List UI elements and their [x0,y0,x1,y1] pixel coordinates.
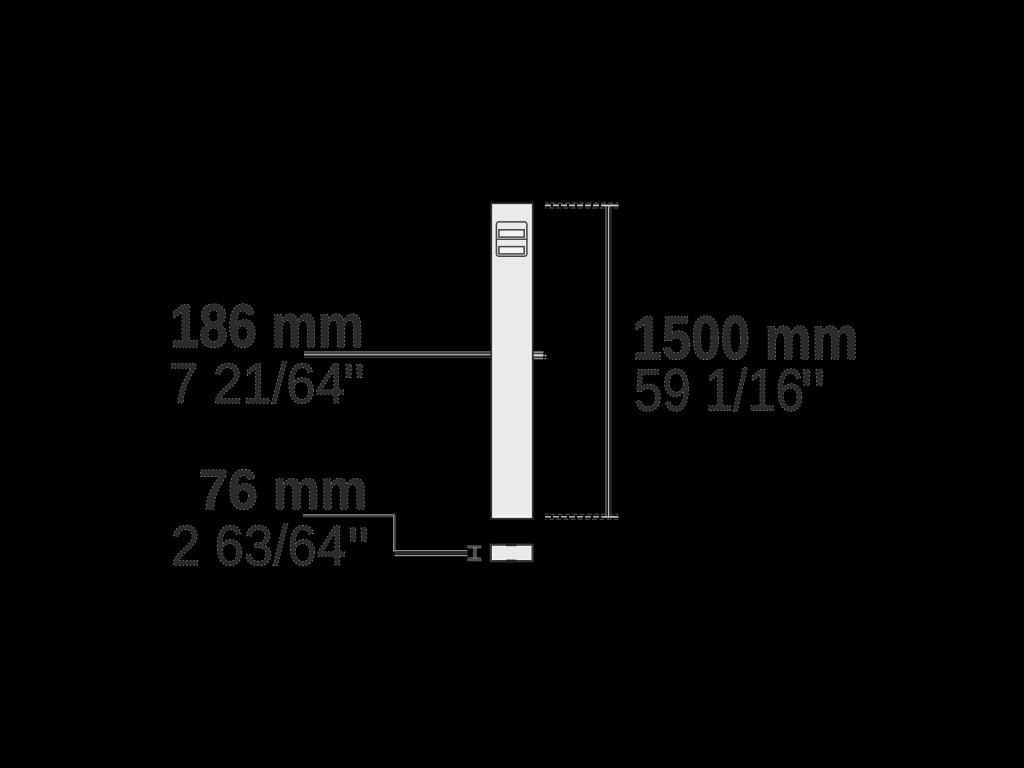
svg-text:": " [344,352,365,419]
svg-text:": " [801,355,826,433]
svg-text:7 21/64: 7 21/64 [169,352,345,416]
svg-text:186 mm: 186 mm [170,292,364,360]
svg-text:2 63/64: 2 63/64 [171,514,346,578]
svg-text:": " [348,516,369,583]
svg-text:59 1/16: 59 1/16 [634,357,804,424]
svg-text:76 mm: 76 mm [199,458,368,521]
